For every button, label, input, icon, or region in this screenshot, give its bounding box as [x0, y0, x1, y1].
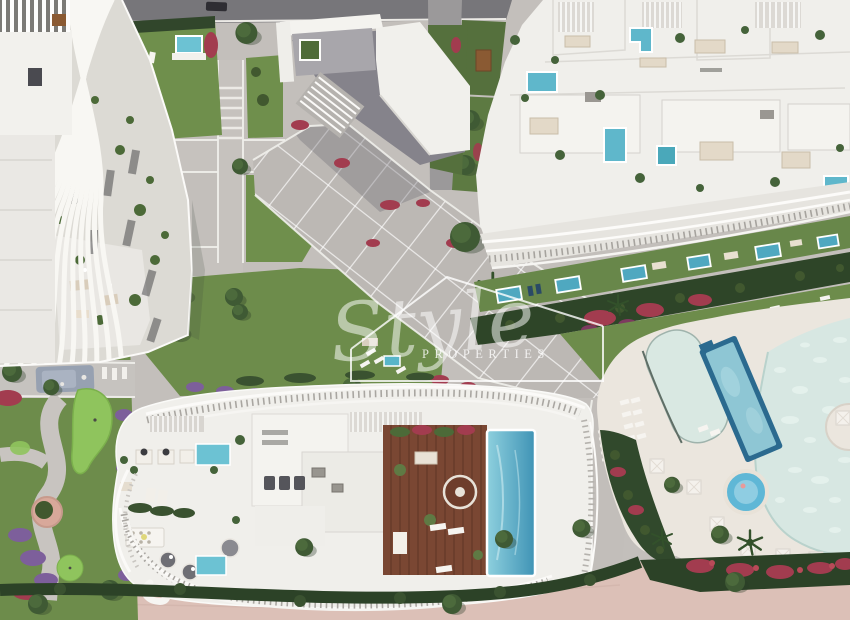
infinity-pool: [487, 430, 535, 576]
building-south: [113, 371, 598, 610]
roof-table: [52, 14, 66, 26]
roof-ac-unit: [28, 68, 42, 86]
picnic-table: [476, 50, 491, 71]
lawn-pool: [176, 36, 202, 53]
watermark-caps: PROPERTIES: [422, 347, 550, 361]
aerial-site-plan: Style PROPERTIES: [0, 0, 850, 620]
terrace-pool-1: [196, 444, 230, 465]
rooftop-wood-deck: [383, 425, 487, 575]
kids-pool: [725, 471, 767, 513]
armchairs: [264, 476, 305, 490]
terrace-pool-2: [196, 556, 226, 575]
pavilion-planter: [300, 40, 320, 60]
parked-car: [206, 2, 227, 12]
daybeds: [136, 449, 194, 465]
watermark-script: Style: [326, 270, 538, 381]
